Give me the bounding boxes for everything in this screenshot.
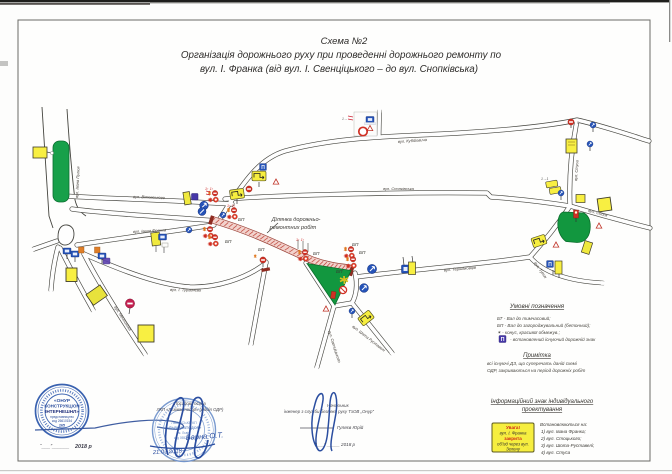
svg-text:код 26610154: код 26610154 <box>52 419 72 423</box>
svg-text:БП: БП <box>225 239 232 244</box>
svg-text:1→1: 1→1 <box>541 177 548 181</box>
svg-text:Інформаційний знак індивідуаль: Інформаційний знак індивідуального <box>491 398 594 405</box>
svg-text:БП: БП <box>258 247 265 252</box>
svg-text:ОДР, закриваються на період до: ОДР, закриваються на період дорожніх роб… <box>487 368 586 373</box>
svg-text:П: П <box>501 337 505 343</box>
svg-text:вул. І. Тургенєва: вул. І. Тургенєва <box>170 287 202 293</box>
svg-text:1) вул. Івана Франка;: 1) вул. Івана Франка; <box>541 429 586 434</box>
svg-text:Ділянка дорожньо-: Ділянка дорожньо- <box>271 217 321 223</box>
svg-text:проектування: проектування <box>522 407 563 413</box>
svg-text:вул. І. Франка: вул. І. Франка <box>500 431 528 436</box>
svg-text:Умовні позначення: Умовні позначення <box>509 303 565 310</box>
svg-text:2018 р: 2018 р <box>74 444 92 450</box>
svg-text:Примітка: Примітка <box>523 353 551 359</box>
svg-text:КОНСТРУКЦІОН: КОНСТРУКЦІОН <box>44 404 79 409</box>
svg-text:Увага!: Увага! <box>506 425 520 430</box>
svg-text:265: 265 <box>59 424 65 428</box>
svg-text:“___” _____ 2018 р: “___” _____ 2018 р <box>315 442 356 447</box>
svg-text:1→: 1→ <box>342 117 347 121</box>
svg-text:БП: БП <box>359 250 366 255</box>
svg-text:Встановлюються на:: Встановлюються на: <box>540 422 588 427</box>
svg-text:закрита: закрита <box>504 436 522 441</box>
svg-text:Схема №2: Схема №2 <box>321 36 368 47</box>
svg-text:вул. І. Франка (від вул. І. Св: вул. І. Франка (від вул. І. Свенціцького… <box>200 64 478 75</box>
svg-text:- встановлений існуючий дорож: - встановлений існуючий дорожній знак <box>510 336 596 342</box>
svg-text:вул. Снопківська: вул. Снопківська <box>383 186 415 191</box>
svg-text:2) вул. Стоцького;: 2) вул. Стоцького; <box>540 436 582 441</box>
svg-text:БП - Вал до загороджувальний: БП - Вал до загороджувальний (бетонний); <box>497 322 591 328</box>
svg-text:✶ - конус, красивої обмежув.: ✶ - конус, красивої обмежув.; <box>497 330 561 335</box>
svg-text:«ЛЬВІВАВТОДОР»: «ЛЬВІВАВТОДОР» <box>167 426 202 430</box>
svg-text:БТ - Вал до тимчасовий;: БТ - Вал до тимчасовий; <box>497 315 551 321</box>
svg-text:БП: БП <box>336 269 343 274</box>
svg-text:ЛЬВІВСЬКЕ КП: ЛЬВІВСЬКЕ КП <box>171 421 197 425</box>
svg-text:ІНТЕРНЕШНЛ»: ІНТЕРНЕШНЛ» <box>45 409 79 414</box>
svg-text:4) вул. Стуса: 4) вул. Стуса <box>541 450 571 455</box>
svg-text:БП: БП <box>352 242 359 247</box>
svg-text:БП: БП <box>313 251 320 256</box>
svg-text:всі існуючі ДЗ, що суперечать: всі існуючі ДЗ, що суперечать даній схем… <box>487 360 578 366</box>
svg-text:БП: БП <box>238 217 245 222</box>
svg-text:3) вул. Шота-Руставелі;: 3) вул. Шота-Руставелі; <box>541 443 595 448</box>
svg-text:Зелену: Зелену <box>506 447 521 452</box>
svg-text:“___”______: “___”______ <box>40 444 70 450</box>
svg-text:5: 5 <box>577 121 579 125</box>
svg-text:ремонтних робіт: ремонтних робіт <box>269 225 317 231</box>
svg-text:Організація дорожнього руху пр: Організація дорожнього руху при проведен… <box>181 50 502 61</box>
svg-text:ЛКП «Львівавтодор» (відділ ОДР: ЛКП «Львівавтодор» (відділ ОДР) <box>156 407 224 412</box>
svg-text:Гуляєв Юрій: Гуляєв Юрій <box>337 424 364 430</box>
